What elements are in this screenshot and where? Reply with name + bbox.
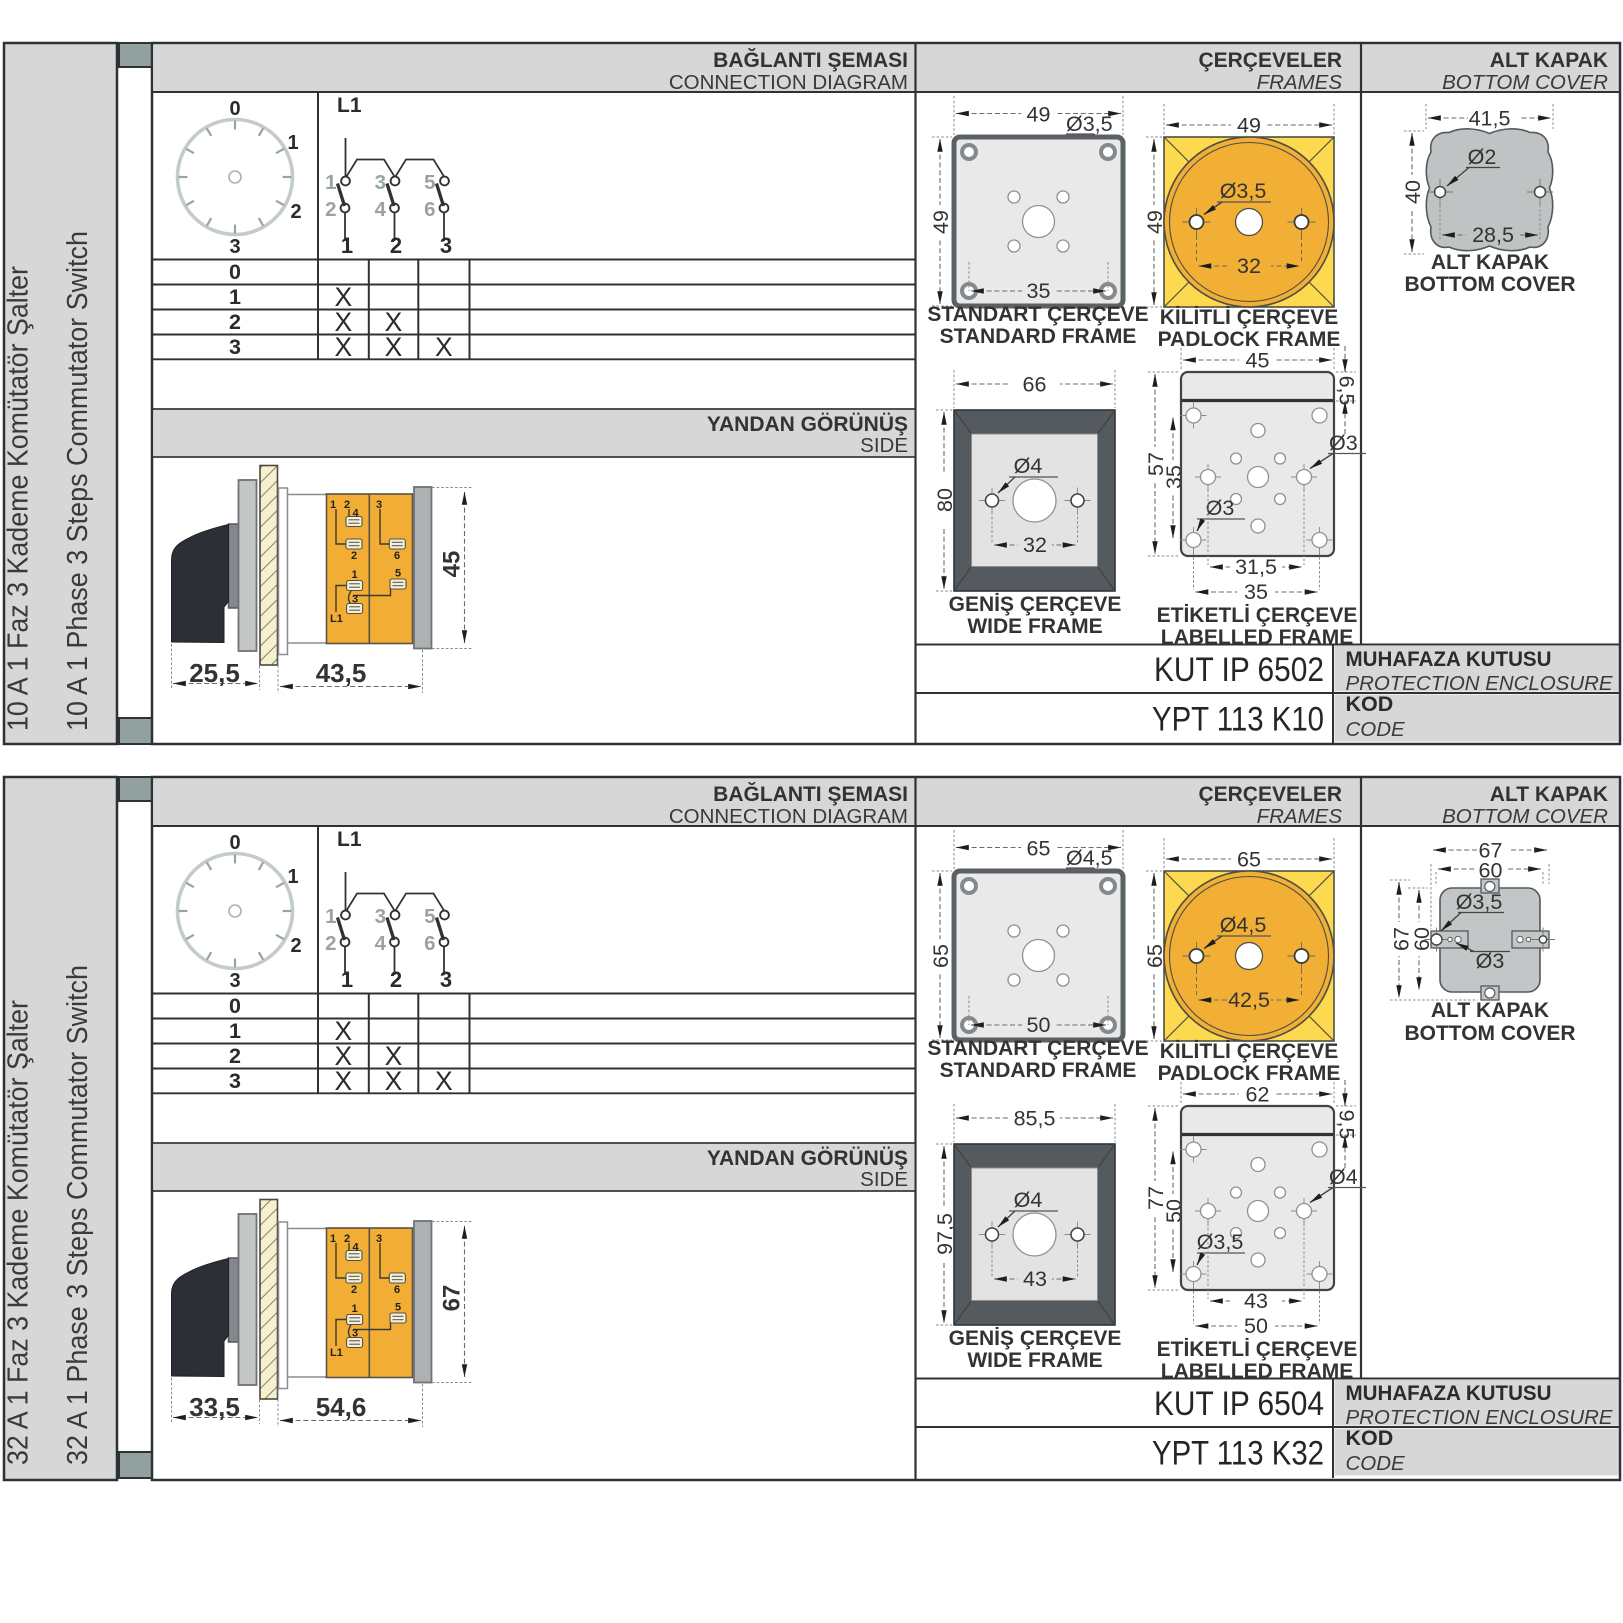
svg-text:5: 5 bbox=[424, 905, 435, 928]
svg-text:Ø4: Ø4 bbox=[1014, 1188, 1043, 1212]
svg-text:2: 2 bbox=[290, 201, 301, 223]
svg-text:Ø4: Ø4 bbox=[1014, 454, 1043, 478]
svg-text:32 A 1 Phase 3 Steps Commutato: 32 A 1 Phase 3 Steps Commutator Switch bbox=[62, 965, 94, 1465]
svg-text:L1: L1 bbox=[330, 1347, 343, 1359]
svg-text:ALT KAPAK: ALT KAPAK bbox=[1431, 999, 1549, 1022]
svg-text:BOTTOM COVER: BOTTOM COVER bbox=[1442, 71, 1608, 94]
svg-text:2: 2 bbox=[290, 935, 301, 957]
svg-text:3: 3 bbox=[375, 905, 386, 928]
svg-text:5: 5 bbox=[424, 171, 435, 194]
svg-text:40: 40 bbox=[1401, 180, 1425, 204]
svg-text:3: 3 bbox=[229, 970, 240, 992]
svg-text:X: X bbox=[385, 332, 403, 362]
svg-text:1: 1 bbox=[325, 905, 336, 928]
svg-text:KOD: KOD bbox=[1346, 1426, 1394, 1450]
svg-text:YANDAN GÖRÜNÜŞ: YANDAN GÖRÜNÜŞ bbox=[707, 413, 908, 436]
svg-text:Ø4: Ø4 bbox=[1329, 1165, 1358, 1189]
svg-text:KİLİTLİ ÇERÇEVE: KİLİTLİ ÇERÇEVE bbox=[1160, 1040, 1339, 1063]
svg-text:ALT KAPAK: ALT KAPAK bbox=[1490, 783, 1608, 806]
svg-text:4: 4 bbox=[352, 508, 359, 520]
svg-text:BOTTOM COVER: BOTTOM COVER bbox=[1404, 1022, 1575, 1045]
svg-text:49: 49 bbox=[1027, 103, 1051, 127]
svg-text:3: 3 bbox=[352, 594, 358, 606]
svg-text:25,5: 25,5 bbox=[189, 658, 240, 688]
svg-text:Ø3,5: Ø3,5 bbox=[1197, 1230, 1244, 1254]
svg-text:X: X bbox=[435, 1066, 453, 1096]
svg-text:Ø3: Ø3 bbox=[1329, 431, 1358, 455]
svg-text:WIDE FRAME: WIDE FRAME bbox=[967, 615, 1102, 638]
svg-text:1: 1 bbox=[352, 1303, 358, 1315]
svg-text:Ø3,5: Ø3,5 bbox=[1220, 179, 1267, 203]
svg-text:0: 0 bbox=[229, 260, 241, 284]
svg-text:Ø3: Ø3 bbox=[1476, 949, 1505, 973]
svg-text:3: 3 bbox=[375, 171, 386, 194]
svg-text:6: 6 bbox=[424, 198, 435, 221]
svg-text:1: 1 bbox=[287, 866, 298, 888]
svg-text:2: 2 bbox=[344, 499, 350, 511]
svg-text:FRAMES: FRAMES bbox=[1257, 71, 1343, 94]
svg-text:KUT IP 6502: KUT IP 6502 bbox=[1154, 651, 1324, 689]
svg-text:2: 2 bbox=[325, 932, 336, 955]
svg-text:KUT IP 6504: KUT IP 6504 bbox=[1154, 1385, 1324, 1423]
svg-text:STANDARD FRAME: STANDARD FRAME bbox=[940, 1059, 1137, 1082]
svg-text:65: 65 bbox=[1027, 837, 1051, 861]
svg-text:1: 1 bbox=[341, 967, 353, 992]
svg-text:YPT 113 K10: YPT 113 K10 bbox=[1152, 701, 1324, 739]
svg-text:54,6: 54,6 bbox=[316, 1392, 367, 1422]
svg-text:3: 3 bbox=[376, 499, 382, 511]
svg-text:3: 3 bbox=[229, 335, 241, 359]
svg-text:45: 45 bbox=[439, 551, 466, 578]
svg-text:4: 4 bbox=[352, 1242, 359, 1254]
svg-text:CODE: CODE bbox=[1346, 718, 1406, 741]
svg-text:2: 2 bbox=[390, 967, 402, 992]
svg-text:49: 49 bbox=[929, 210, 953, 234]
svg-text:Ø3,5: Ø3,5 bbox=[1066, 112, 1113, 136]
svg-text:2: 2 bbox=[325, 198, 336, 221]
svg-text:ALT KAPAK: ALT KAPAK bbox=[1490, 49, 1608, 72]
svg-text:9,5: 9,5 bbox=[1335, 1110, 1359, 1140]
svg-text:2: 2 bbox=[390, 233, 402, 258]
svg-text:67: 67 bbox=[439, 1285, 466, 1312]
svg-text:1: 1 bbox=[229, 1019, 241, 1043]
svg-text:Ø4,5: Ø4,5 bbox=[1066, 846, 1113, 870]
svg-text:WIDE FRAME: WIDE FRAME bbox=[967, 1349, 1102, 1372]
svg-text:2: 2 bbox=[344, 1233, 350, 1245]
svg-text:3: 3 bbox=[352, 1328, 358, 1340]
svg-text:1: 1 bbox=[352, 569, 358, 581]
svg-text:28,5: 28,5 bbox=[1472, 223, 1514, 247]
svg-text:ÇERÇEVELER: ÇERÇEVELER bbox=[1198, 49, 1342, 72]
svg-text:10 A 1 Faz 3 Kademe Komütatör: 10 A 1 Faz 3 Kademe Komütatör Şalter bbox=[3, 266, 35, 731]
svg-text:43,5: 43,5 bbox=[316, 658, 367, 688]
svg-text:1: 1 bbox=[330, 499, 336, 511]
svg-text:YANDAN GÖRÜNÜŞ: YANDAN GÖRÜNÜŞ bbox=[707, 1147, 908, 1170]
svg-text:65: 65 bbox=[929, 944, 953, 968]
svg-text:ÇERÇEVELER: ÇERÇEVELER bbox=[1198, 783, 1342, 806]
svg-text:Ø3: Ø3 bbox=[1206, 496, 1235, 520]
svg-text:2: 2 bbox=[351, 1284, 357, 1296]
svg-text:66: 66 bbox=[1023, 373, 1047, 397]
svg-text:1: 1 bbox=[341, 233, 353, 258]
svg-text:KOD: KOD bbox=[1346, 692, 1394, 716]
svg-text:SIDE: SIDE bbox=[860, 434, 908, 457]
svg-text:LABELLED FRAME: LABELLED FRAME bbox=[1161, 626, 1354, 649]
svg-text:2: 2 bbox=[229, 1044, 241, 1068]
svg-text:X: X bbox=[385, 1066, 403, 1096]
svg-text:5: 5 bbox=[395, 568, 401, 580]
svg-text:CONNECTION DIAGRAM: CONNECTION DIAGRAM bbox=[669, 805, 908, 828]
svg-text:42,5: 42,5 bbox=[1228, 988, 1270, 1012]
svg-text:GENİŞ ÇERÇEVE: GENİŞ ÇERÇEVE bbox=[949, 1327, 1122, 1350]
svg-text:L1: L1 bbox=[330, 613, 343, 625]
svg-text:BAĞLANTI ŞEMASI: BAĞLANTI ŞEMASI bbox=[713, 782, 908, 806]
svg-text:1: 1 bbox=[287, 132, 298, 154]
svg-text:35: 35 bbox=[1027, 279, 1051, 303]
svg-text:4: 4 bbox=[375, 932, 387, 955]
svg-text:0: 0 bbox=[229, 832, 240, 854]
svg-text:Ø3,5: Ø3,5 bbox=[1456, 890, 1503, 914]
svg-text:2: 2 bbox=[229, 310, 241, 334]
svg-text:43: 43 bbox=[1244, 1289, 1268, 1313]
svg-text:LABELLED FRAME: LABELLED FRAME bbox=[1161, 1360, 1354, 1383]
svg-text:Ø2: Ø2 bbox=[1468, 145, 1497, 169]
svg-text:50: 50 bbox=[1244, 1314, 1268, 1338]
svg-text:CONNECTION DIAGRAM: CONNECTION DIAGRAM bbox=[669, 71, 908, 94]
svg-text:ETİKETLİ ÇERÇEVE: ETİKETLİ ÇERÇEVE bbox=[1157, 604, 1358, 627]
svg-text:3: 3 bbox=[229, 1069, 241, 1093]
svg-text:3: 3 bbox=[440, 233, 452, 258]
svg-text:50: 50 bbox=[1027, 1013, 1051, 1037]
svg-text:1: 1 bbox=[330, 1233, 336, 1245]
svg-text:32 A 1 Faz 3 Kademe Komütatör: 32 A 1 Faz 3 Kademe Komütatör Şalter bbox=[3, 1000, 35, 1465]
svg-text:Ø4,5: Ø4,5 bbox=[1220, 913, 1267, 937]
svg-text:41,5: 41,5 bbox=[1469, 107, 1511, 131]
svg-text:CODE: CODE bbox=[1346, 1452, 1406, 1475]
svg-text:2: 2 bbox=[351, 550, 357, 562]
svg-text:6,5: 6,5 bbox=[1335, 376, 1359, 406]
svg-text:1: 1 bbox=[325, 171, 336, 194]
svg-text:10 A 1 Phase 3 Steps Commutato: 10 A 1 Phase 3 Steps Commutator Switch bbox=[62, 231, 94, 731]
svg-text:43: 43 bbox=[1023, 1267, 1047, 1291]
svg-text:SIDE: SIDE bbox=[860, 1168, 908, 1191]
svg-text:6: 6 bbox=[424, 932, 435, 955]
svg-text:62: 62 bbox=[1246, 1083, 1270, 1107]
svg-text:FRAMES: FRAMES bbox=[1257, 805, 1343, 828]
svg-text:BAĞLANTI ŞEMASI: BAĞLANTI ŞEMASI bbox=[713, 48, 908, 72]
svg-text:MUHAFAZA KUTUSU: MUHAFAZA KUTUSU bbox=[1346, 1381, 1552, 1405]
svg-text:GENİŞ ÇERÇEVE: GENİŞ ÇERÇEVE bbox=[949, 593, 1122, 616]
svg-text:5: 5 bbox=[395, 1302, 401, 1314]
svg-text:49: 49 bbox=[1237, 114, 1261, 138]
svg-text:3: 3 bbox=[440, 967, 452, 992]
svg-text:STANDART ÇERÇEVE: STANDART ÇERÇEVE bbox=[927, 303, 1148, 326]
svg-text:X: X bbox=[335, 1066, 353, 1096]
svg-text:BOTTOM COVER: BOTTOM COVER bbox=[1442, 805, 1608, 828]
svg-text:85,5: 85,5 bbox=[1014, 1107, 1056, 1131]
svg-text:0: 0 bbox=[229, 98, 240, 120]
svg-text:6: 6 bbox=[394, 550, 400, 562]
svg-text:ALT KAPAK: ALT KAPAK bbox=[1431, 251, 1549, 274]
svg-text:0: 0 bbox=[229, 994, 241, 1018]
svg-text:STANDART ÇERÇEVE: STANDART ÇERÇEVE bbox=[927, 1037, 1148, 1060]
svg-text:33,5: 33,5 bbox=[189, 1392, 240, 1422]
svg-text:KİLİTLİ ÇERÇEVE: KİLİTLİ ÇERÇEVE bbox=[1160, 306, 1339, 329]
svg-text:65: 65 bbox=[1237, 848, 1261, 872]
svg-text:X: X bbox=[435, 332, 453, 362]
svg-text:BOTTOM COVER: BOTTOM COVER bbox=[1404, 273, 1575, 296]
svg-text:YPT 113 K32: YPT 113 K32 bbox=[1152, 1435, 1324, 1473]
svg-text:ETİKETLİ ÇERÇEVE: ETİKETLİ ÇERÇEVE bbox=[1157, 1338, 1358, 1361]
svg-text:35: 35 bbox=[1244, 580, 1268, 604]
svg-text:MUHAFAZA KUTUSU: MUHAFAZA KUTUSU bbox=[1346, 647, 1552, 671]
svg-text:STANDARD FRAME: STANDARD FRAME bbox=[940, 325, 1137, 348]
svg-text:6: 6 bbox=[394, 1284, 400, 1296]
svg-text:1: 1 bbox=[229, 285, 241, 309]
svg-text:3: 3 bbox=[376, 1233, 382, 1245]
svg-text:31,5: 31,5 bbox=[1235, 555, 1277, 579]
svg-text:L1: L1 bbox=[337, 828, 362, 851]
svg-text:45: 45 bbox=[1246, 349, 1270, 373]
svg-text:32: 32 bbox=[1237, 254, 1261, 278]
svg-text:3: 3 bbox=[229, 236, 240, 258]
svg-text:4: 4 bbox=[375, 198, 387, 221]
svg-text:X: X bbox=[335, 332, 353, 362]
svg-text:L1: L1 bbox=[337, 94, 362, 117]
svg-text:32: 32 bbox=[1023, 533, 1047, 557]
